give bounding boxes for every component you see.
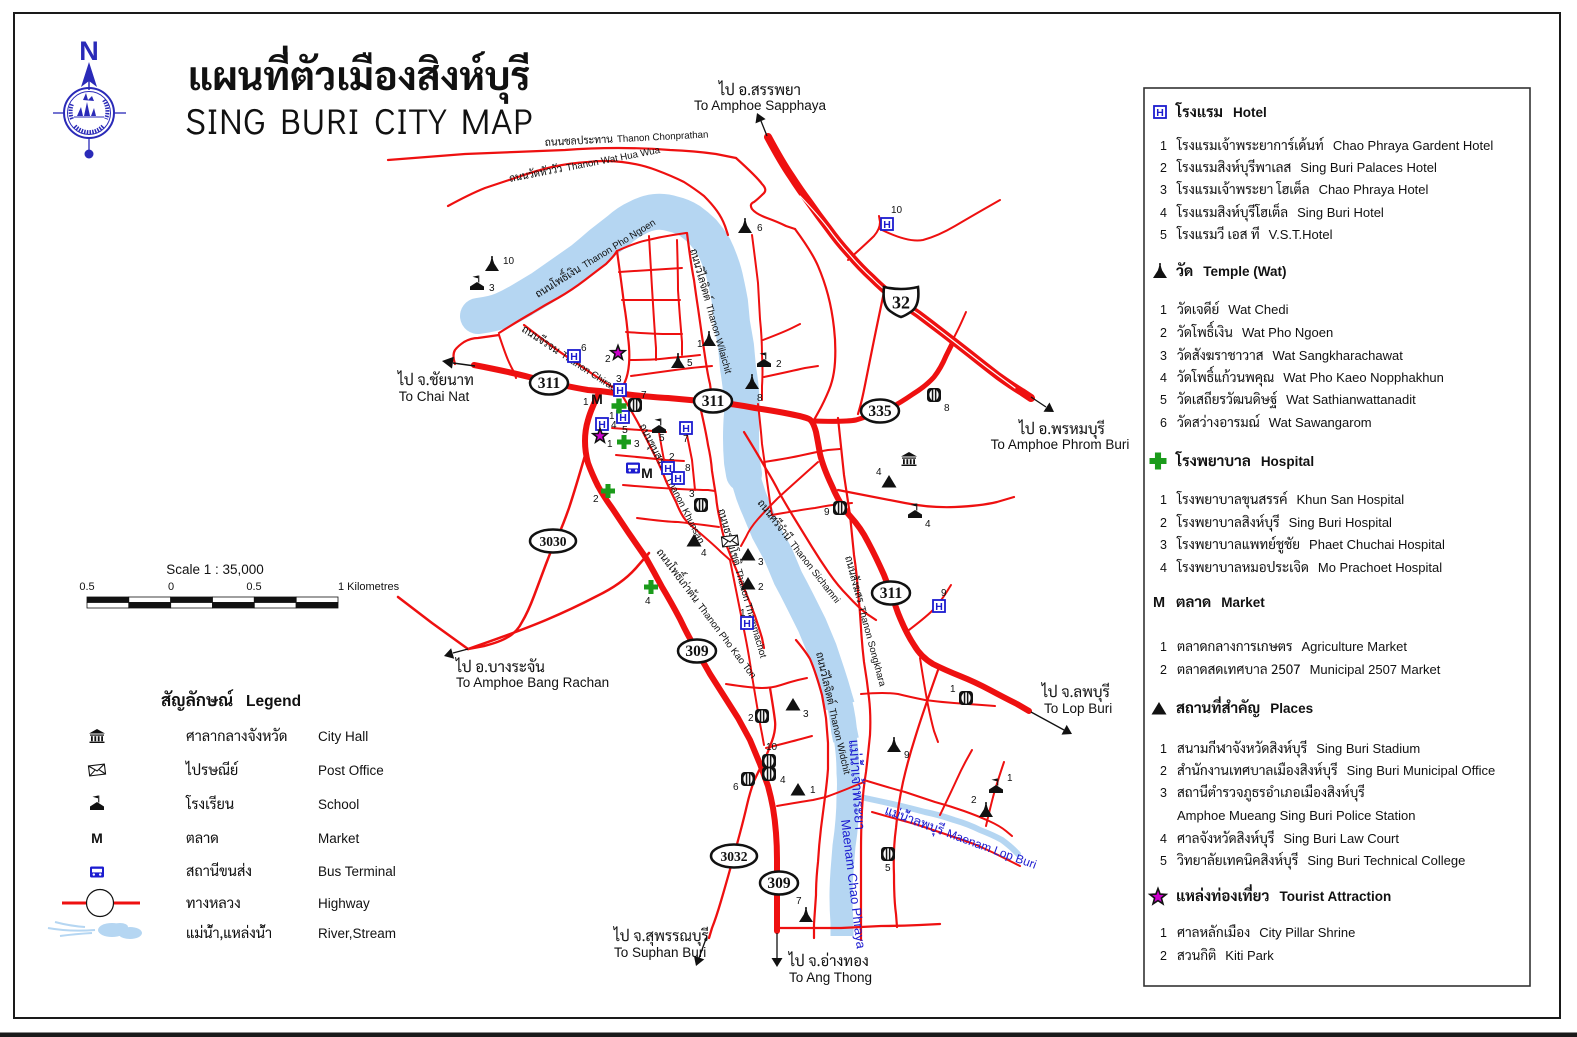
- svg-text:309: 309: [767, 875, 791, 892]
- svg-text:2: 2: [1160, 949, 1167, 963]
- svg-text:7: 7: [796, 896, 802, 907]
- svg-text:Chao Phraya Hotel: Chao Phraya Hotel: [1319, 182, 1429, 197]
- svg-text:1: 1: [607, 439, 613, 450]
- svg-text:M: M: [641, 465, 653, 481]
- svg-text:8: 8: [685, 463, 691, 474]
- svg-text:Wat Chedi: Wat Chedi: [1228, 302, 1288, 317]
- svg-text:5: 5: [687, 358, 693, 369]
- svg-text:6: 6: [581, 343, 587, 354]
- svg-text:6: 6: [733, 782, 739, 793]
- svg-text:Places: Places: [1270, 701, 1313, 716]
- svg-text:Scale 1 : 35,000: Scale 1 : 35,000: [166, 562, 264, 577]
- svg-text:4: 4: [1160, 371, 1167, 385]
- svg-text:10: 10: [766, 742, 778, 753]
- svg-text:2: 2: [971, 795, 977, 806]
- svg-text:1: 1: [810, 785, 816, 796]
- svg-text:5: 5: [885, 863, 891, 874]
- svg-text:H: H: [616, 385, 624, 397]
- svg-text:3: 3: [1160, 538, 1167, 552]
- svg-text:2: 2: [748, 713, 754, 724]
- svg-text:School: School: [318, 797, 359, 812]
- svg-text:2: 2: [593, 494, 599, 505]
- svg-text:2: 2: [669, 452, 675, 463]
- svg-text:Sing Buri Municipal Office: Sing Buri Municipal Office: [1347, 763, 1496, 778]
- svg-text:4: 4: [780, 775, 786, 786]
- svg-text:3: 3: [1160, 183, 1167, 197]
- svg-text:Wat Sawangarom: Wat Sawangarom: [1269, 415, 1372, 430]
- svg-text:To Lop Buri: To Lop Buri: [1044, 701, 1112, 716]
- svg-text:H: H: [883, 219, 891, 231]
- svg-text:2: 2: [1160, 161, 1167, 175]
- svg-text:4: 4: [611, 420, 617, 431]
- svg-text:Hotel: Hotel: [1233, 105, 1267, 120]
- svg-text:1: 1: [740, 608, 746, 619]
- svg-text:1: 1: [697, 339, 703, 350]
- svg-text:Amphoe Mueang Sing Buri Police: Amphoe Mueang Sing Buri Police Station: [1177, 808, 1415, 823]
- svg-text:2: 2: [758, 582, 764, 593]
- svg-text:2: 2: [1160, 663, 1167, 677]
- svg-text:0.5: 0.5: [79, 581, 94, 593]
- svg-text:To Ang Thong: To Ang Thong: [789, 970, 872, 985]
- svg-text:Hospital: Hospital: [1261, 454, 1314, 469]
- svg-text:H: H: [743, 618, 751, 630]
- svg-text:3: 3: [803, 709, 809, 720]
- svg-text:H: H: [674, 473, 682, 485]
- svg-text:32: 32: [892, 293, 910, 313]
- svg-text:Phaet Chuchai Hospital: Phaet Chuchai Hospital: [1309, 537, 1445, 552]
- svg-text:4: 4: [925, 519, 931, 530]
- svg-text:Tourist Attraction: Tourist Attraction: [1279, 889, 1391, 904]
- svg-text:10: 10: [503, 256, 515, 267]
- svg-text:To Chai Nat: To Chai Nat: [399, 389, 470, 404]
- svg-text:1: 1: [1160, 493, 1167, 507]
- svg-text:9: 9: [824, 507, 830, 518]
- svg-text:Bus Terminal: Bus Terminal: [318, 864, 396, 879]
- svg-text:2: 2: [605, 354, 611, 365]
- svg-text:To Amphoe Phrom Buri: To Amphoe Phrom Buri: [991, 437, 1130, 452]
- svg-text:2: 2: [776, 359, 782, 370]
- svg-text:Khun San Hospital: Khun San Hospital: [1296, 492, 1404, 507]
- svg-text:Sing Buri Hotel: Sing Buri Hotel: [1297, 205, 1384, 220]
- svg-text:City Hall: City Hall: [318, 729, 368, 744]
- svg-text:To Suphan Buri: To Suphan Buri: [614, 945, 706, 960]
- svg-text:Post Office: Post Office: [318, 763, 384, 778]
- svg-text:8: 8: [944, 403, 950, 414]
- svg-text:Sing Buri Technical College: Sing Buri Technical College: [1307, 853, 1465, 868]
- svg-text:5: 5: [1160, 228, 1167, 242]
- svg-text:Wat Sangkharachawat: Wat Sangkharachawat: [1273, 348, 1404, 363]
- svg-text:3: 3: [758, 557, 764, 568]
- svg-text:6: 6: [1160, 416, 1167, 430]
- svg-text:3: 3: [1160, 786, 1167, 800]
- svg-text:3: 3: [616, 374, 622, 385]
- svg-text:5: 5: [1160, 393, 1167, 407]
- svg-text:M: M: [91, 830, 103, 846]
- svg-text:Wat Pho Ngoen: Wat Pho Ngoen: [1242, 325, 1333, 340]
- svg-text:0: 0: [168, 581, 174, 593]
- svg-text:3: 3: [689, 489, 695, 500]
- svg-text:1: 1: [1160, 303, 1167, 317]
- svg-text:Kiti Park: Kiti Park: [1225, 948, 1274, 963]
- svg-text:1: 1: [1160, 926, 1167, 940]
- svg-text:3: 3: [489, 283, 495, 294]
- svg-text:7: 7: [683, 434, 689, 445]
- svg-text:Temple (Wat): Temple (Wat): [1203, 264, 1286, 279]
- svg-text:H: H: [619, 412, 627, 424]
- svg-text:M: M: [1153, 595, 1165, 611]
- svg-text:335: 335: [868, 403, 892, 420]
- svg-text:Mo Prachoet Hospital: Mo Prachoet Hospital: [1318, 560, 1442, 575]
- svg-text:Market: Market: [1221, 595, 1265, 610]
- svg-text:6: 6: [757, 223, 763, 234]
- svg-text:0.5: 0.5: [246, 581, 261, 593]
- svg-text:5: 5: [622, 424, 628, 436]
- svg-text:3030: 3030: [540, 534, 567, 549]
- svg-text:City Pillar Shrine: City Pillar Shrine: [1259, 925, 1355, 940]
- svg-text:Legend: Legend: [246, 693, 301, 710]
- svg-text:Sing Buri Law Court: Sing Buri Law Court: [1283, 831, 1399, 846]
- svg-text:Chao Phraya Gardent Hotel: Chao Phraya Gardent Hotel: [1333, 138, 1494, 153]
- svg-text:1: 1: [1160, 139, 1167, 153]
- svg-text:5: 5: [1160, 854, 1167, 868]
- svg-text:Market: Market: [318, 831, 360, 846]
- svg-text:2: 2: [1160, 516, 1167, 530]
- svg-text:H: H: [664, 463, 672, 475]
- svg-text:H: H: [682, 423, 690, 435]
- svg-text:Municipal 2507 Market: Municipal 2507 Market: [1310, 662, 1441, 677]
- svg-text:4: 4: [1160, 206, 1167, 220]
- svg-text:2: 2: [1160, 326, 1167, 340]
- svg-text:To Amphoe Sapphaya: To Amphoe Sapphaya: [694, 98, 827, 113]
- svg-text:To Amphoe Bang Rachan: To Amphoe Bang Rachan: [456, 675, 609, 690]
- svg-text:1: 1: [1160, 742, 1167, 756]
- svg-text:311: 311: [702, 393, 724, 410]
- svg-text:4: 4: [701, 548, 707, 559]
- svg-text:4: 4: [645, 596, 651, 607]
- svg-text:Wat Pho Kaeo Nopphakhun: Wat Pho Kaeo Nopphakhun: [1283, 370, 1444, 385]
- svg-text:3: 3: [634, 439, 640, 450]
- svg-text:2: 2: [1160, 764, 1167, 778]
- svg-text:1: 1: [950, 684, 956, 695]
- svg-text:10: 10: [891, 205, 903, 216]
- svg-text:1 Kilometres: 1 Kilometres: [338, 581, 400, 593]
- svg-text:River,Stream: River,Stream: [318, 926, 396, 941]
- svg-text:1: 1: [1160, 640, 1167, 654]
- svg-text:3032: 3032: [721, 849, 748, 864]
- svg-text:1: 1: [1007, 773, 1013, 784]
- svg-text:4: 4: [1160, 832, 1167, 846]
- svg-text:V.S.T.Hotel: V.S.T.Hotel: [1269, 227, 1333, 242]
- svg-text:N: N: [79, 36, 99, 66]
- svg-text:Sing Buri Palaces Hotel: Sing Buri Palaces Hotel: [1300, 160, 1437, 175]
- svg-text:9: 9: [941, 588, 947, 599]
- svg-text:309: 309: [685, 643, 709, 660]
- svg-text:4: 4: [1160, 561, 1167, 575]
- svg-text:7: 7: [641, 390, 647, 401]
- svg-text:Wat Sathianwattanadit: Wat Sathianwattanadit: [1286, 392, 1416, 407]
- svg-text:Agriculture Market: Agriculture Market: [1302, 639, 1408, 654]
- svg-text:H: H: [1156, 107, 1164, 119]
- svg-text:311: 311: [880, 585, 902, 602]
- svg-text:Thanon Chonprathan: Thanon Chonprathan: [617, 129, 709, 145]
- svg-text:311: 311: [538, 375, 560, 392]
- svg-text:3: 3: [1160, 349, 1167, 363]
- svg-text:4: 4: [876, 467, 882, 478]
- svg-text:Highway: Highway: [318, 896, 370, 911]
- svg-text:Sing Buri Stadium: Sing Buri Stadium: [1316, 741, 1420, 756]
- svg-text:9: 9: [904, 750, 910, 761]
- svg-text:8: 8: [757, 393, 763, 404]
- svg-text:5: 5: [659, 433, 665, 444]
- svg-text:H: H: [935, 601, 943, 613]
- svg-text:H: H: [570, 351, 578, 363]
- svg-text:M: M: [591, 391, 603, 407]
- svg-text:Sing Buri Hospital: Sing Buri Hospital: [1289, 515, 1392, 530]
- svg-text:1: 1: [583, 397, 589, 408]
